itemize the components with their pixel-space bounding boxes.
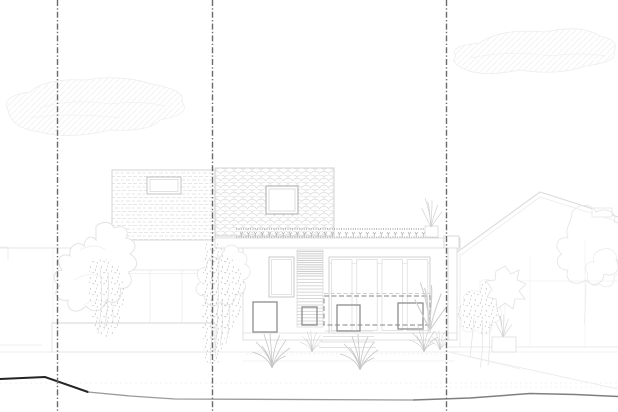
roof-fascia-band (215, 238, 460, 248)
right-planter-box (492, 337, 516, 352)
door-panel-1 (332, 260, 353, 331)
planter-wall (52, 323, 215, 352)
veranda-column (448, 248, 457, 340)
left-wing-parapet-notch (0, 247, 8, 260)
elevation-drawing-canvas (0, 0, 618, 412)
ground-line-right-segment (413, 394, 618, 401)
terrain (0, 352, 618, 400)
boundary-climber-plant (201, 241, 228, 366)
background-tree-cloud-right (454, 29, 615, 74)
neighbor-roof-inner-line (461, 197, 616, 255)
garden-path-diagonal-2 (449, 352, 520, 369)
louver-panel (297, 276, 323, 327)
rooftop-grass (422, 198, 442, 227)
ground-floor-window-glazing (272, 260, 292, 295)
rooftop-planter-pot (425, 226, 438, 237)
garden-path-diagonal-1 (449, 352, 618, 389)
louver-panel-upper (297, 250, 323, 276)
ground-line-mid-segment (88, 392, 413, 400)
glazed-door-assembly (329, 257, 430, 333)
ground-line-dark-segment (0, 377, 88, 392)
neighbor-roof-outline (456, 192, 618, 253)
green-roof-planting (236, 228, 438, 238)
background-foliage (6, 29, 615, 136)
neighbor-chimney (592, 208, 612, 217)
upper-window-left-glazing (150, 180, 178, 192)
background-tree-cloud-left (6, 78, 184, 136)
elevation-drawing (0, 0, 618, 412)
door-panel-3 (382, 260, 403, 331)
upper-window-right-glazing (269, 189, 295, 211)
